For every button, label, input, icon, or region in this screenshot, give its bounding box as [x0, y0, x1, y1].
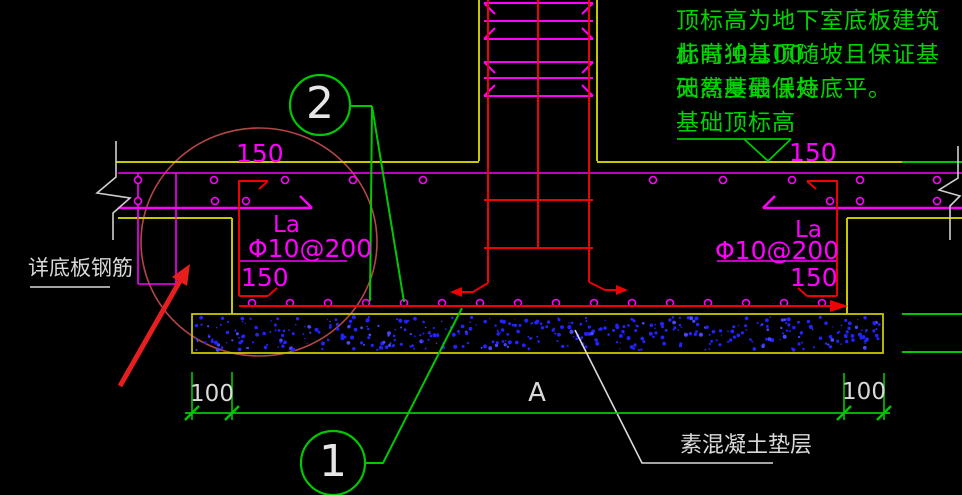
anchor-length-left: 150	[241, 264, 289, 292]
cad-canvas: 顶标高为地下室底板建筑标高-0.100 此时独基顶随坡且保证基础高度最低处 天然…	[0, 0, 962, 495]
column-dowel-bars	[456, 0, 620, 292]
dim-100-right: 100	[842, 380, 886, 405]
break-symbol-left	[97, 141, 130, 240]
note-line-3: 天然基础保持底平。	[676, 69, 962, 103]
elevation-marker	[677, 139, 791, 161]
slab-thickness-left: 150	[236, 140, 280, 168]
rebar-spec-left: Φ10@200	[248, 235, 372, 263]
dim-100-left: 100	[190, 382, 234, 407]
note-line-2: 此时独基顶随坡且保证基础高度最低处	[676, 35, 962, 69]
slab-thickness-right: 150	[789, 139, 833, 167]
pointer-arrow	[120, 264, 190, 386]
note-line-1: 顶标高为地下室底板建筑标高-0.100	[676, 1, 962, 35]
dim-A-middle: A	[515, 379, 559, 408]
break-symbol-right	[939, 146, 960, 240]
anchor-length-right: 150	[790, 264, 838, 292]
rebar-spec-right: Φ10@200	[715, 237, 839, 265]
callout-2-number: 2	[298, 80, 342, 128]
callout-1-number: 1	[311, 438, 355, 486]
slab-rebar-note: 详底板钢筋	[28, 257, 133, 280]
green-continuation-lines	[902, 162, 962, 352]
cushion-concrete-texture	[194, 315, 880, 352]
cushion-label: 素混凝土垫层	[680, 434, 812, 458]
note-line-4-elevation-label: 基础顶标高	[676, 103, 962, 137]
general-notes: 顶标高为地下室底板建筑标高-0.100 此时独基顶随坡且保证基础高度最低处 天然…	[676, 1, 962, 137]
